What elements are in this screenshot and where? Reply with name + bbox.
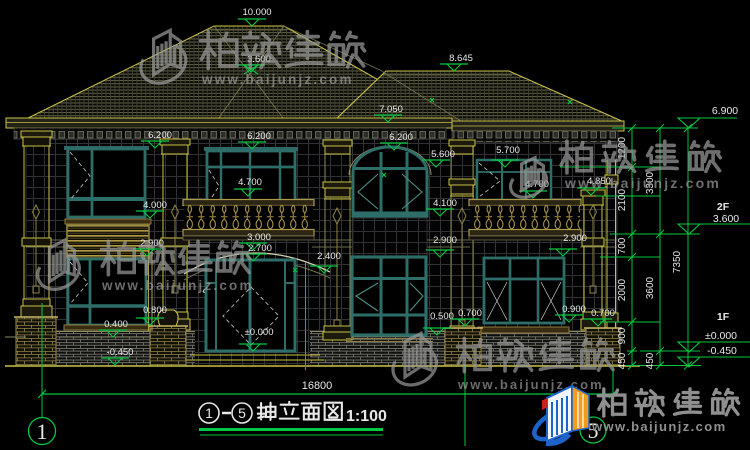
svg-text:4.100: 4.100 bbox=[433, 198, 457, 209]
svg-text:www.baijunjz.com: www.baijunjz.com bbox=[101, 278, 254, 293]
svg-text:1: 1 bbox=[205, 405, 213, 421]
svg-text:450: 450 bbox=[617, 352, 628, 369]
svg-text:0.500: 0.500 bbox=[430, 311, 454, 322]
svg-text:0.800: 0.800 bbox=[143, 305, 167, 316]
svg-text:5.700: 5.700 bbox=[496, 145, 520, 156]
svg-text:0.700: 0.700 bbox=[458, 308, 482, 319]
svg-text:±0.000: ±0.000 bbox=[705, 330, 737, 342]
svg-text:www.baijunjz.com: www.baijunjz.com bbox=[457, 377, 604, 392]
svg-text:2.900: 2.900 bbox=[433, 235, 457, 246]
svg-text:www.baijunjz.com: www.baijunjz.com bbox=[201, 72, 354, 87]
svg-text:6.900: 6.900 bbox=[712, 105, 738, 117]
svg-text:2000: 2000 bbox=[617, 278, 628, 301]
svg-text:2F: 2F bbox=[717, 201, 730, 213]
svg-text:6.200: 6.200 bbox=[247, 131, 271, 142]
svg-text:1F: 1F bbox=[717, 311, 730, 323]
svg-text:0.700: 0.700 bbox=[591, 308, 615, 319]
svg-text:450: 450 bbox=[645, 352, 656, 369]
svg-text:6.200: 6.200 bbox=[389, 132, 413, 143]
svg-text:1:100: 1:100 bbox=[346, 408, 387, 425]
svg-text:2100: 2100 bbox=[617, 188, 628, 211]
svg-text:6.200: 6.200 bbox=[148, 130, 172, 141]
svg-text:2.400: 2.400 bbox=[317, 251, 341, 262]
svg-text:www.baijunjz.com: www.baijunjz.com bbox=[564, 175, 721, 191]
svg-text:2.700: 2.700 bbox=[248, 243, 272, 254]
svg-text:3.600: 3.600 bbox=[713, 213, 739, 225]
svg-text:-0.450: -0.450 bbox=[707, 345, 737, 357]
svg-text:10.000: 10.000 bbox=[242, 7, 271, 18]
svg-text:4.700: 4.700 bbox=[238, 177, 262, 188]
svg-text:700: 700 bbox=[617, 237, 628, 254]
svg-text:7.050: 7.050 bbox=[379, 104, 403, 115]
svg-text:4.000: 4.000 bbox=[143, 200, 167, 211]
svg-text:900: 900 bbox=[617, 327, 628, 344]
svg-text:2.900: 2.900 bbox=[563, 233, 587, 244]
svg-text:0.400: 0.400 bbox=[104, 319, 128, 330]
svg-text:8.645: 8.645 bbox=[449, 53, 473, 64]
svg-text:3.000: 3.000 bbox=[247, 232, 271, 243]
svg-text:±0.000: ±0.000 bbox=[245, 327, 274, 338]
svg-text:3600: 3600 bbox=[645, 276, 656, 299]
svg-text:www.baijunjz.com: www.baijunjz.com bbox=[591, 419, 727, 434]
svg-text:5: 5 bbox=[238, 405, 246, 421]
svg-text:5.600: 5.600 bbox=[431, 149, 455, 160]
svg-text:16800: 16800 bbox=[302, 380, 333, 392]
svg-text:0.900: 0.900 bbox=[562, 304, 586, 315]
svg-text:1: 1 bbox=[37, 419, 48, 444]
svg-text:7350: 7350 bbox=[672, 250, 683, 273]
svg-text:-0.450: -0.450 bbox=[107, 347, 134, 358]
